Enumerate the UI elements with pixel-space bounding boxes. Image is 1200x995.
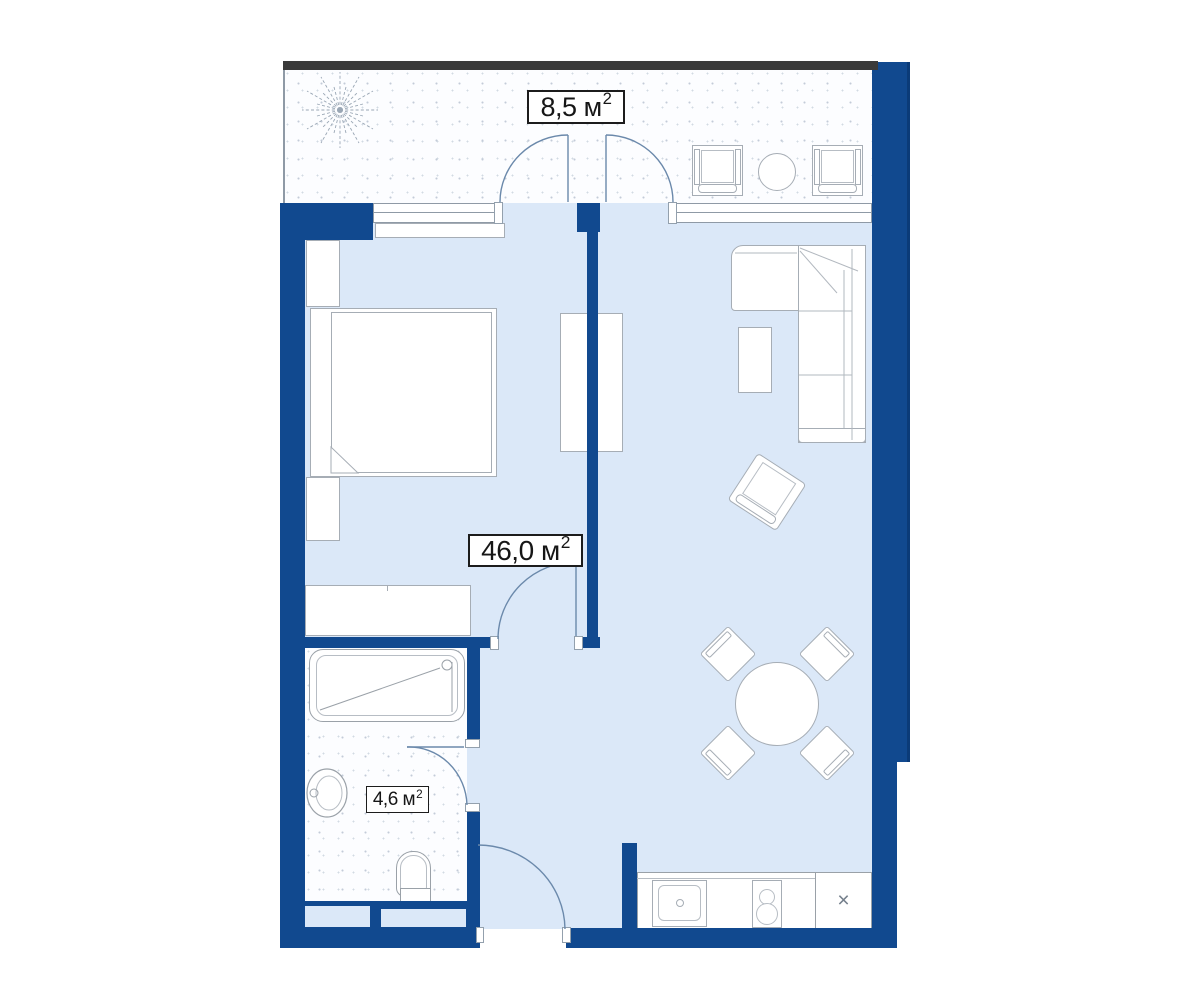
- sofa-armrest: [798, 428, 866, 443]
- chair-armrest: [694, 149, 700, 185]
- floor-plan: ×: [0, 0, 1200, 995]
- area-value: 4,6: [373, 789, 398, 811]
- wall-partition-post: [577, 203, 600, 232]
- window-sill: [375, 223, 505, 238]
- dining-table: [735, 662, 819, 746]
- wall-kitchen-stub: [622, 843, 637, 929]
- door-jamb: [494, 202, 503, 224]
- sink-drain: [676, 899, 684, 907]
- duct-niche: [381, 909, 466, 927]
- wall-left-top: [280, 203, 373, 240]
- balcony-edge-bar: [283, 61, 878, 70]
- nightstand: [306, 477, 340, 541]
- wall-partition: [587, 223, 598, 648]
- area-power: 2: [561, 532, 570, 553]
- stove-burner-large: [756, 903, 778, 925]
- door-jamb: [465, 803, 480, 812]
- area-power: 2: [603, 89, 612, 109]
- balcony-chair: [692, 145, 743, 196]
- wall-right-upper: [872, 62, 910, 762]
- chair-armrest: [814, 149, 820, 185]
- fridge-mark: ×: [837, 889, 849, 913]
- door-jamb: [476, 927, 484, 943]
- balcony-table: [758, 153, 796, 191]
- window-glass-line: [677, 212, 871, 213]
- area-label-apartment: 46,0 м2: [468, 534, 583, 567]
- area-label-balcony: 8,5 м2: [527, 90, 625, 124]
- wall-bottom-right: [566, 928, 897, 948]
- area-unit: м: [584, 92, 602, 123]
- bed-mattress: [331, 312, 492, 473]
- door-jamb: [668, 202, 677, 224]
- balcony-rail-left: [283, 70, 285, 203]
- toilet-tank: [400, 888, 431, 902]
- duct-niche: [305, 906, 370, 927]
- dresser-handle: [387, 585, 388, 591]
- chair-armrest: [855, 149, 861, 185]
- fridge: ×: [815, 872, 872, 929]
- wardrobe: [306, 240, 340, 307]
- window-living: [676, 203, 872, 223]
- area-value: 8,5: [541, 92, 577, 123]
- area-label-bathroom: 4,6 м2: [366, 786, 429, 813]
- door-jamb: [562, 927, 571, 943]
- chair-seat: [821, 150, 854, 183]
- area-power: 2: [416, 788, 422, 801]
- area-unit: м: [541, 535, 560, 567]
- chair-armrest: [735, 149, 741, 185]
- door-jamb: [574, 636, 583, 650]
- door-jamb: [490, 636, 499, 650]
- area-value: 46,0: [481, 535, 534, 567]
- area-unit: м: [403, 789, 416, 811]
- dresser: [305, 585, 471, 636]
- chair-front: [698, 184, 737, 193]
- chair-front: [818, 184, 857, 193]
- balcony-chair: [812, 145, 863, 196]
- sofa-body: [798, 245, 866, 443]
- chair-seat: [701, 150, 734, 183]
- wall-bathroom-right-upper: [467, 637, 480, 747]
- sofa-chaise: [731, 245, 800, 311]
- door-jamb: [465, 739, 480, 748]
- bathtub-inner: [316, 655, 458, 716]
- window-glass-line: [374, 212, 496, 213]
- coffee-table: [738, 327, 772, 393]
- wall-right-lower: [872, 762, 897, 948]
- wall-left: [280, 203, 305, 948]
- window-bedroom: [373, 203, 497, 223]
